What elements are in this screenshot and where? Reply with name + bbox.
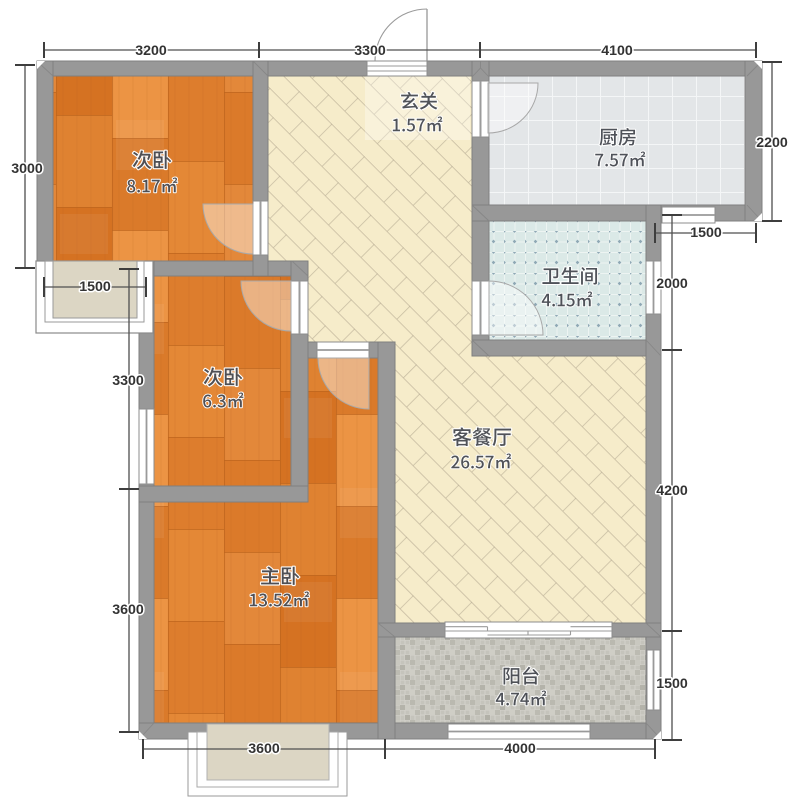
svg-text:3000: 3000 xyxy=(11,161,43,177)
svg-text:4100: 4100 xyxy=(601,43,633,59)
svg-text:3600: 3600 xyxy=(248,741,280,757)
svg-text:4000: 4000 xyxy=(504,741,536,757)
svg-text:3200: 3200 xyxy=(135,43,167,59)
svg-text:2000: 2000 xyxy=(656,276,688,292)
svg-text:2200: 2200 xyxy=(756,135,788,151)
svg-text:3300: 3300 xyxy=(112,373,144,389)
svg-text:3300: 3300 xyxy=(354,43,386,59)
svg-text:3600: 3600 xyxy=(112,602,144,618)
svg-text:1500: 1500 xyxy=(79,279,111,295)
svg-text:1500: 1500 xyxy=(656,676,688,692)
svg-text:1500: 1500 xyxy=(690,225,722,241)
svg-text:4200: 4200 xyxy=(656,483,688,499)
